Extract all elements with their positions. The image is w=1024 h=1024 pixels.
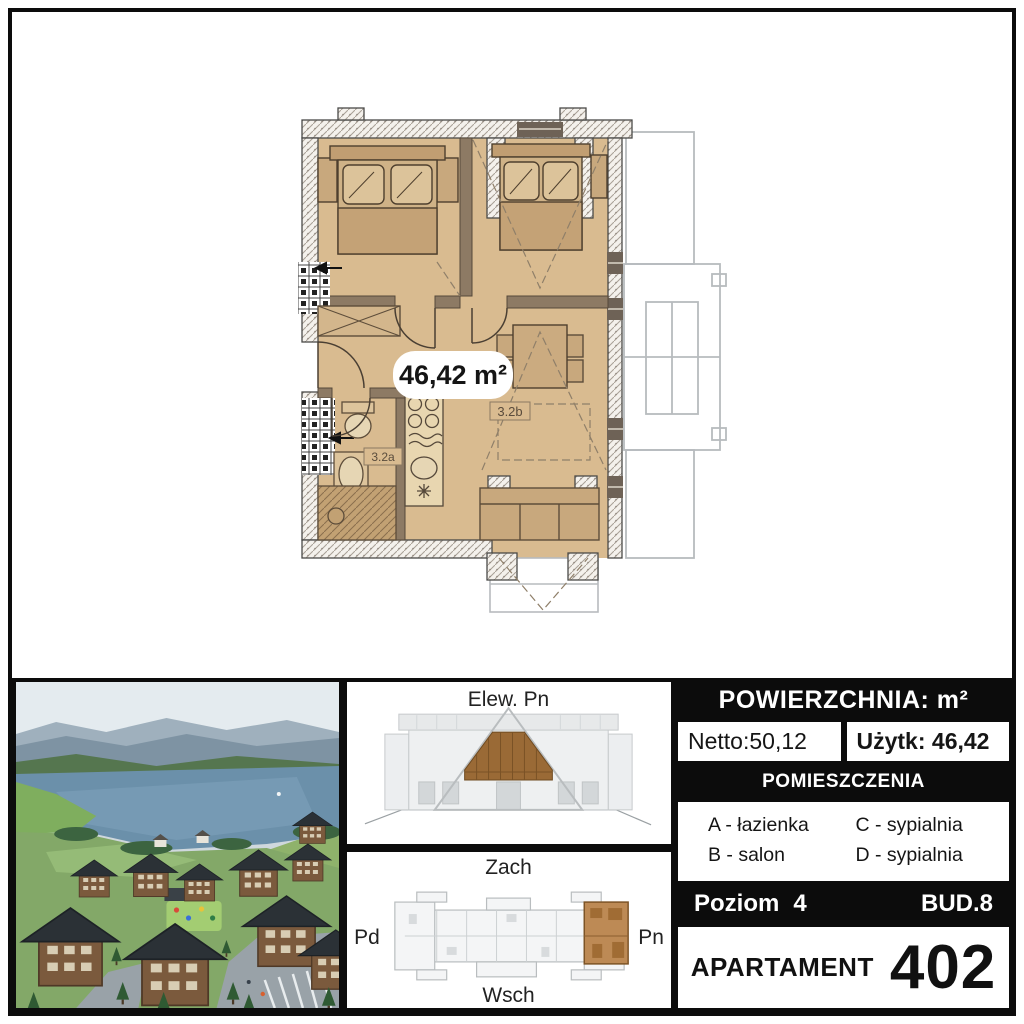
netto-area-value: Netto:50,12 [678,722,841,761]
keyplan-panel: Zach Wsch Pd Pn [343,848,675,1012]
elevation-panel: Elew. Pn [343,678,675,848]
riser-grid-bottom [302,398,335,475]
area-section-header: POWIERZCHNIA: m² [678,678,1009,722]
area-badge: 46,42 m² [393,351,513,399]
elevation-drawing: Elew. Pn [347,682,671,844]
area-values-row: Netto:50,12 Użytk: 46,42 [678,722,1009,761]
legend-item-b: B - salon [708,844,856,867]
level-indicator: Poziom4 [694,890,821,918]
sofa [480,488,599,540]
keyplan-label-left: Pd [354,926,380,949]
apartment-label: APARTAMENT [691,952,874,983]
keyplan-label-top: Zach [485,856,532,879]
living-label: 3.2b [497,404,522,419]
apartment-card: 3.2a 3.2b 46,42 m² [0,0,1024,1024]
rooms-legend: A - łazienka C - sypialnia B - salon D -… [678,802,1009,881]
legend-item-a: A - łazienka [708,814,856,837]
keyplan-label-bottom: Wsch [482,984,534,1007]
selected-unit-highlight [584,902,628,964]
usable-area-value: Użytk: 46,42 [847,722,1010,761]
keyplan-drawing: Zach Wsch Pd Pn [347,852,671,1008]
info-panel: POWIERZCHNIA: m² Netto:50,12 Użytk: 46,4… [675,678,1012,1012]
building-number: BUD.8 [921,890,993,918]
keyplan-label-right: Pn [638,926,664,949]
legend-item-d: D - sypialnia [856,844,1004,867]
area-label: 46,42 m² [399,360,507,390]
bottom-strip: Elew. Pn [12,678,1012,1012]
resort-photo-drawing [16,682,339,1008]
apartment-number-box: APARTAMENT 402 [678,927,1009,1008]
bed-left-bedroom [318,146,458,254]
resort-aerial-photo [12,678,343,1012]
level-label: Poziom [694,890,779,917]
middle-panels: Elew. Pn [343,678,675,1012]
level-value: 4 [793,890,806,917]
legend-item-c: C - sypialnia [856,814,1004,837]
floor-plan-drawing: 3.2a 3.2b 46,42 m² [12,12,1012,678]
bathroom-label: 3.2a [371,450,395,464]
wardrobe [318,306,400,336]
kitchen [405,392,443,506]
apartment-number: 402 [890,937,996,999]
rooms-section-header: POMIESZCZENIA [678,761,1009,802]
balcony-right [624,132,726,558]
floor-plan-section: 3.2a 3.2b 46,42 m² [12,12,1012,678]
level-building-row: Poziom4 BUD.8 [678,881,1009,926]
